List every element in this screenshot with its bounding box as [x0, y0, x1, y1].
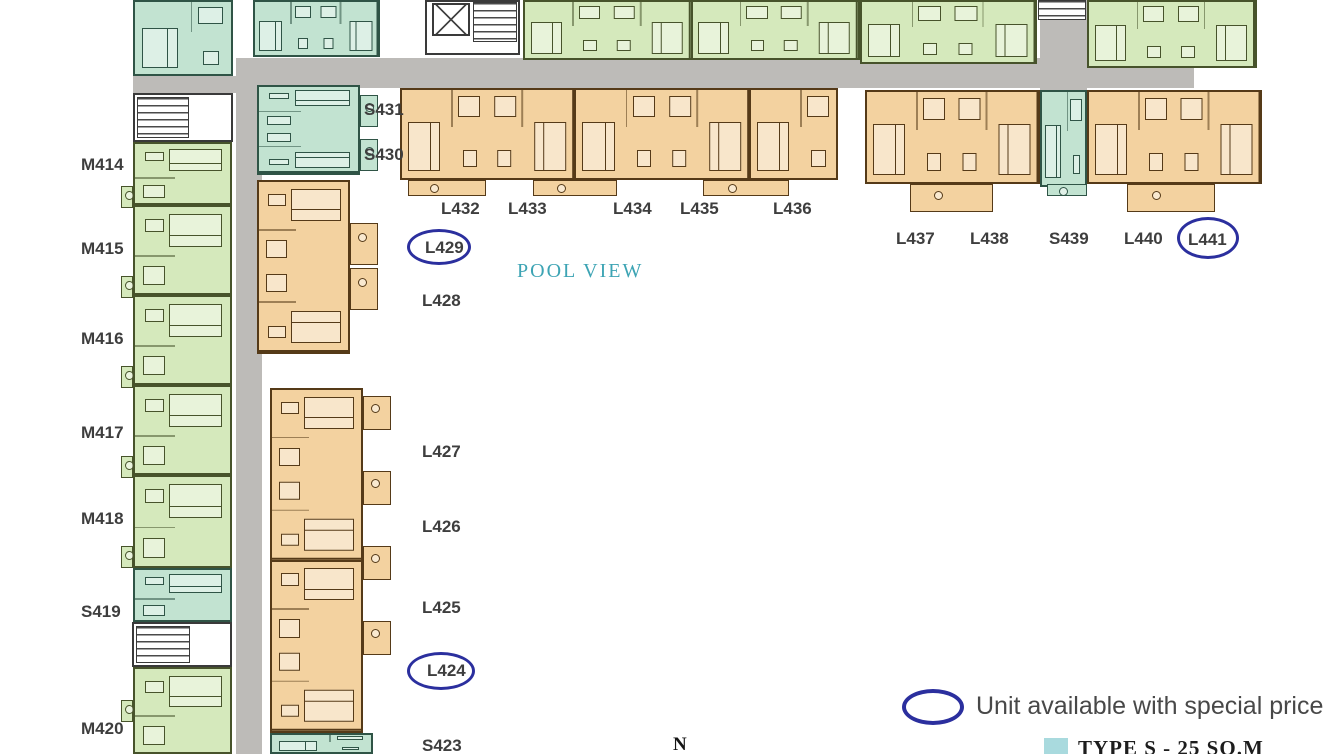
- bath-icon: [320, 6, 336, 19]
- tbl-icon: [145, 399, 164, 412]
- balcony-stub: [408, 180, 486, 196]
- bed-icon: [295, 152, 350, 168]
- tbl-icon: [637, 150, 651, 168]
- bath-icon: [746, 6, 767, 19]
- tbl-icon: [927, 153, 941, 171]
- unit-label-m420: M420: [81, 719, 124, 739]
- balcony-stub: [703, 180, 789, 196]
- corridor: [133, 76, 236, 93]
- tbl-icon: [145, 152, 164, 161]
- bed-icon: [349, 21, 372, 51]
- unit-block-green: [133, 295, 232, 385]
- elevator-icon: [432, 3, 470, 36]
- compass-north-label: N: [673, 734, 687, 754]
- bath-icon: [781, 6, 802, 19]
- bed-icon: [1095, 25, 1126, 61]
- tbl-icon: [342, 747, 359, 750]
- unit: [948, 2, 1036, 62]
- bed-icon: [304, 568, 354, 600]
- highlight-oval-l429: [407, 229, 471, 265]
- balcony-stub: [533, 180, 617, 196]
- unit: [1089, 92, 1174, 182]
- balcony-stub: [121, 276, 133, 298]
- unit: [662, 90, 749, 178]
- bath-icon: [279, 448, 300, 466]
- bed-icon: [582, 122, 614, 171]
- bed-icon: [1095, 124, 1127, 174]
- bath-icon: [143, 356, 166, 375]
- bath-icon: [295, 6, 311, 19]
- tbl-icon: [203, 51, 219, 65]
- bath-icon: [1143, 6, 1164, 21]
- bath-icon: [668, 96, 690, 117]
- bed-icon: [304, 397, 354, 429]
- bath-icon: [143, 538, 166, 558]
- tbl-icon: [269, 93, 289, 99]
- bed-icon: [304, 691, 354, 723]
- unit-block-orange: [270, 388, 363, 733]
- tbl-icon: [923, 43, 938, 55]
- unit: [867, 92, 952, 182]
- unit-label-m418: M418: [81, 509, 124, 529]
- unit: [259, 129, 358, 173]
- stairs-icon: [136, 626, 190, 663]
- bath-icon: [633, 96, 655, 117]
- unit: [607, 2, 691, 58]
- bath-icon: [954, 6, 976, 20]
- unit-label-l440: L440: [1124, 229, 1163, 249]
- unit: [487, 90, 574, 178]
- unit: [1089, 2, 1171, 66]
- balcony-stub: [350, 223, 378, 265]
- tbl-icon: [145, 577, 164, 585]
- bed-icon: [1220, 124, 1252, 174]
- unit: [135, 477, 230, 566]
- tbl-icon: [145, 681, 164, 693]
- unit-block-teal: [257, 85, 360, 175]
- bed-icon: [819, 22, 850, 53]
- unit: [135, 570, 230, 620]
- unit-block-teal: [133, 0, 233, 76]
- highlight-oval-l424: [407, 652, 475, 690]
- unit: [691, 2, 775, 58]
- unit: [862, 2, 948, 62]
- tbl-icon: [281, 573, 299, 586]
- bath-icon: [266, 274, 287, 292]
- tbl-icon: [1073, 155, 1080, 174]
- tbl-icon: [145, 309, 164, 322]
- unit: [135, 669, 230, 752]
- tbl-icon: [281, 705, 299, 718]
- bath-icon: [198, 7, 223, 24]
- tbl-icon: [583, 40, 597, 51]
- bath-icon: [923, 98, 945, 120]
- tbl-icon: [463, 150, 477, 168]
- unit: [135, 144, 230, 203]
- unit-label-l428: L428: [422, 291, 461, 311]
- unit: [135, 387, 230, 473]
- unit: [774, 2, 858, 58]
- unit: [952, 92, 1039, 182]
- bath-icon: [143, 605, 166, 616]
- unit-block-green: [133, 205, 232, 295]
- unit-label-l435: L435: [680, 199, 719, 219]
- tbl-icon: [811, 150, 825, 168]
- unit: [255, 2, 316, 55]
- bed-icon: [169, 304, 222, 337]
- unit-label-l433: L433: [508, 199, 547, 219]
- unit: [272, 560, 361, 646]
- balcony-stub: [121, 186, 133, 208]
- legend-special-price-label: Unit available with special price: [976, 692, 1323, 721]
- bed-icon: [169, 214, 222, 247]
- unit-label-l437: L437: [896, 229, 935, 249]
- unit-label-s431: S431: [364, 100, 404, 120]
- unit-block-green: [133, 142, 232, 205]
- unit-label-m416: M416: [81, 329, 124, 349]
- unit-block-orange: [865, 90, 1040, 184]
- unit-label-s423: S423: [422, 736, 462, 754]
- unit-label-m414: M414: [81, 155, 124, 175]
- bath-icon: [267, 133, 291, 142]
- bed-icon: [295, 90, 350, 106]
- unit: [259, 87, 358, 129]
- bath-icon: [1145, 98, 1167, 120]
- balcony-stub: [121, 366, 133, 388]
- unit-block-green: [133, 475, 232, 568]
- bed-icon: [169, 394, 222, 427]
- bath-icon: [1070, 99, 1081, 121]
- unit: [272, 645, 361, 731]
- tbl-icon: [281, 402, 299, 415]
- legend-type-s-swatch: [1044, 738, 1068, 754]
- bath-icon: [279, 619, 300, 637]
- bath-icon: [807, 96, 829, 117]
- stairs-icon: [137, 97, 189, 138]
- tbl-icon: [672, 150, 686, 168]
- bed-icon: [873, 124, 905, 174]
- balcony-stub: [363, 621, 391, 655]
- balcony-stub: [350, 268, 378, 310]
- bath-icon: [958, 98, 980, 120]
- unit-label-l434: L434: [613, 199, 652, 219]
- bath-icon: [494, 96, 516, 117]
- balcony-stub: [121, 546, 133, 568]
- bed-icon: [169, 484, 222, 518]
- unit-label-m417: M417: [81, 423, 124, 443]
- unit-label-s439: S439: [1049, 229, 1089, 249]
- unit: [272, 390, 361, 474]
- bed-icon: [757, 122, 789, 171]
- bed-icon: [868, 24, 900, 58]
- tbl-icon: [497, 150, 511, 168]
- bed-icon: [291, 189, 341, 221]
- bed-icon: [995, 24, 1027, 58]
- balcony-stub: [363, 396, 391, 430]
- bed-icon: [698, 22, 729, 53]
- unit: [1174, 92, 1261, 182]
- unit-label-l438: L438: [970, 229, 1009, 249]
- bath-icon: [918, 6, 940, 20]
- bed-icon: [291, 311, 341, 343]
- unit-block-teal: [1040, 90, 1087, 187]
- bed-icon: [652, 22, 683, 53]
- tbl-icon: [1149, 153, 1163, 171]
- stairs-icon: [473, 2, 517, 42]
- bed-icon: [304, 519, 354, 551]
- unit: [135, 2, 231, 74]
- unit-label-s419: S419: [81, 602, 121, 622]
- tbl-icon: [784, 40, 798, 51]
- bed-icon: [169, 149, 222, 171]
- bath-icon: [267, 116, 291, 125]
- tbl-icon: [751, 40, 765, 51]
- bed-icon: [998, 124, 1030, 174]
- bath-icon: [337, 736, 363, 740]
- unit-label-l426: L426: [422, 517, 461, 537]
- bed-icon: [531, 22, 562, 53]
- tbl-icon: [145, 489, 164, 502]
- unit-label-l432: L432: [441, 199, 480, 219]
- bath-icon: [143, 266, 166, 285]
- unit-block-green: [860, 0, 1037, 64]
- unit-block-orange: [400, 88, 838, 180]
- unit: [316, 2, 379, 55]
- balcony-stub: [363, 546, 391, 580]
- bath-icon: [266, 240, 287, 258]
- unit: [272, 474, 361, 560]
- unit: [259, 182, 348, 266]
- pool-view-label: POOL VIEW: [517, 260, 643, 283]
- bath-icon: [279, 653, 300, 671]
- unit-block-green: [133, 667, 232, 754]
- tbl-icon: [958, 43, 973, 55]
- bath-icon: [143, 446, 166, 465]
- bed-icon: [169, 676, 222, 708]
- balcony-stub: [363, 471, 391, 505]
- balcony-stub: [1127, 184, 1215, 212]
- bed-icon: [408, 122, 440, 171]
- tbl-icon: [1147, 46, 1161, 59]
- unit: [135, 297, 230, 383]
- bed-icon: [534, 122, 566, 171]
- unit-label-m415: M415: [81, 239, 124, 259]
- bed-icon: [708, 122, 740, 171]
- unit: [135, 207, 230, 293]
- bath-icon: [1178, 6, 1199, 21]
- unit-block-orange: [257, 180, 350, 354]
- unit: [574, 90, 661, 178]
- unit: [1042, 92, 1085, 185]
- bath-icon: [1180, 98, 1202, 120]
- balcony-stub: [121, 456, 133, 478]
- floor-plan-canvas: M414 M415 M416 M417 M418 S419 M420 S431 …: [0, 0, 1342, 754]
- tbl-icon: [1184, 153, 1198, 171]
- legend-oval-icon: [902, 689, 964, 725]
- unit: [259, 266, 348, 352]
- tbl-icon: [962, 153, 976, 171]
- unit: [272, 735, 371, 752]
- unit-block-green: [133, 385, 232, 475]
- bed-icon: [259, 21, 282, 51]
- bed-icon: [1045, 125, 1061, 177]
- tbl-icon: [281, 533, 299, 546]
- bath-icon: [458, 96, 480, 117]
- bath-icon: [613, 6, 634, 19]
- unit: [402, 90, 487, 178]
- tbl-icon: [323, 38, 333, 49]
- tbl-icon: [617, 40, 631, 51]
- stairs-icon: [1038, 0, 1086, 20]
- unit-block-teal: [133, 568, 232, 622]
- bath-icon: [143, 726, 166, 744]
- tbl-icon: [1181, 46, 1195, 59]
- unit-block-green: [1087, 0, 1257, 68]
- tbl-icon: [145, 219, 164, 232]
- balcony-stub: [1047, 184, 1087, 196]
- unit: [749, 90, 836, 178]
- bath-icon: [143, 185, 166, 198]
- tbl-icon: [268, 326, 286, 339]
- tbl-icon: [268, 194, 286, 207]
- legend-type-s-label: TYPE S - 25 SQ.M: [1078, 736, 1264, 754]
- bath-icon: [579, 6, 600, 19]
- bed-icon: [1216, 25, 1247, 61]
- unit-block-teal: [253, 0, 380, 57]
- unit: [525, 2, 607, 58]
- unit-block-orange: [1087, 90, 1262, 184]
- bed-icon: [279, 741, 317, 751]
- unit-label-l425: L425: [422, 598, 461, 618]
- unit: [1171, 2, 1255, 66]
- tbl-icon: [269, 159, 289, 165]
- unit-label-l427: L427: [422, 442, 461, 462]
- unit-block-teal: [270, 733, 373, 754]
- unit-label-l436: L436: [773, 199, 812, 219]
- tbl-icon: [298, 38, 308, 49]
- balcony-stub: [910, 184, 993, 212]
- bed-icon: [142, 28, 178, 68]
- highlight-oval-l441: [1177, 217, 1239, 259]
- unit-label-s430: S430: [364, 145, 404, 165]
- bed-icon: [169, 574, 222, 593]
- unit-block-green: [523, 0, 860, 60]
- bath-icon: [279, 481, 300, 499]
